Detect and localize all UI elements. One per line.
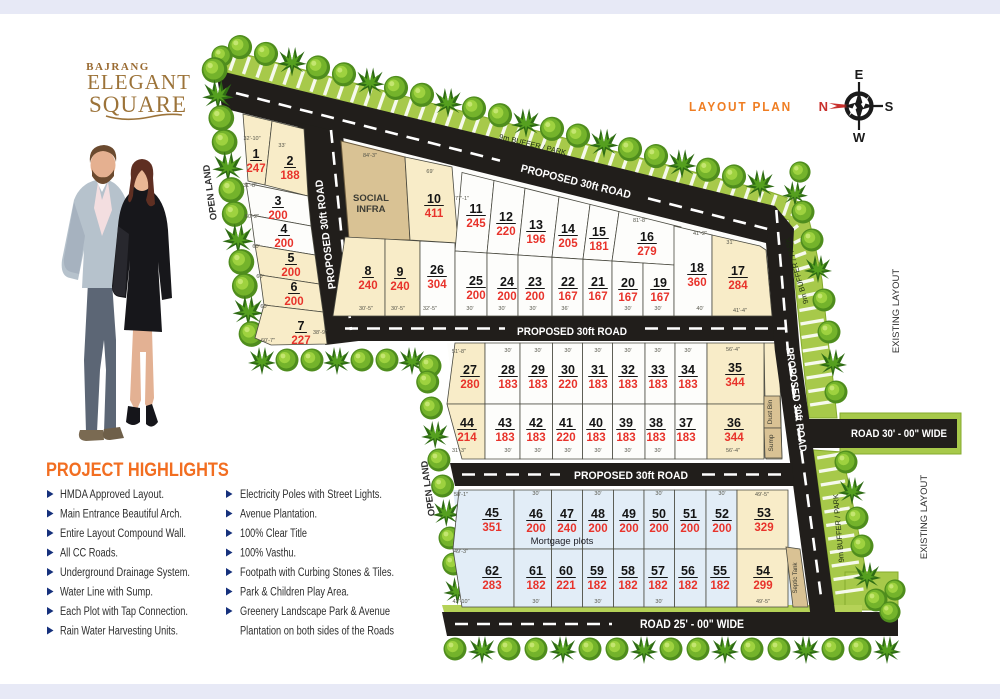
svg-text:53: 53 [757, 506, 771, 520]
svg-text:29: 29 [531, 363, 545, 377]
svg-text:183: 183 [588, 379, 607, 391]
svg-text:6: 6 [291, 280, 298, 294]
svg-text:1: 1 [253, 147, 260, 161]
svg-text:329: 329 [754, 522, 773, 534]
svg-text:30': 30' [504, 448, 511, 454]
svg-text:200: 200 [497, 291, 516, 303]
svg-text:N: N [819, 99, 828, 114]
svg-text:W: W [853, 130, 866, 145]
svg-text:167: 167 [618, 292, 637, 304]
svg-text:182: 182 [526, 580, 545, 592]
svg-text:205: 205 [558, 238, 578, 250]
svg-text:30': 30' [532, 491, 539, 497]
svg-text:167: 167 [650, 292, 669, 304]
svg-text:30': 30' [594, 491, 601, 497]
svg-text:PROPOSED 30ft ROAD: PROPOSED 30ft ROAD [517, 326, 627, 338]
svg-text:183: 183 [648, 379, 667, 391]
svg-text:200: 200 [712, 523, 731, 535]
svg-text:182: 182 [710, 580, 729, 592]
svg-text:15: 15 [592, 225, 606, 239]
svg-text:167: 167 [588, 291, 607, 303]
svg-text:30': 30' [718, 491, 725, 497]
svg-text:EXISTING LAYOUT: EXISTING LAYOUT [919, 475, 930, 559]
svg-text:2: 2 [287, 154, 294, 168]
svg-text:Underground Drainage System.: Underground Drainage System. [60, 567, 190, 579]
svg-text:69': 69' [426, 169, 433, 175]
svg-text:200: 200 [588, 523, 607, 535]
svg-text:10: 10 [427, 192, 441, 206]
svg-text:9: 9 [397, 265, 404, 279]
svg-text:30': 30' [654, 348, 661, 354]
svg-text:344: 344 [724, 432, 744, 444]
svg-text:51: 51 [683, 507, 697, 521]
svg-text:30': 30' [654, 306, 661, 312]
svg-text:31'-3": 31'-3" [452, 448, 466, 454]
svg-text:8: 8 [365, 264, 372, 278]
svg-text:59: 59 [590, 564, 604, 578]
svg-text:19: 19 [653, 276, 667, 290]
svg-text:183: 183 [618, 379, 637, 391]
svg-text:Main Entrance Beautiful Arch.: Main Entrance Beautiful Arch. [60, 509, 182, 521]
svg-text:33': 33' [278, 143, 285, 149]
svg-text:60'-7": 60'-7" [261, 338, 275, 344]
svg-text:Dust Bin: Dust Bin [767, 399, 774, 424]
svg-text:32'-10": 32'-10" [243, 136, 260, 142]
svg-text:49: 49 [622, 507, 636, 521]
svg-text:41: 41 [559, 416, 573, 430]
svg-text:62: 62 [485, 564, 499, 578]
svg-text:196: 196 [526, 234, 545, 246]
svg-text:13: 13 [529, 218, 543, 232]
svg-text:HMDA Approved Layout.: HMDA Approved Layout. [60, 489, 164, 501]
svg-text:LAYOUT PLAN: LAYOUT PLAN [689, 99, 792, 114]
svg-text:183: 183 [646, 432, 665, 444]
svg-text:240: 240 [358, 280, 377, 292]
svg-text:27: 27 [463, 363, 477, 377]
svg-text:30': 30' [594, 348, 601, 354]
svg-text:Each Plot with Tap Connection.: Each Plot with Tap Connection. [60, 606, 188, 618]
svg-text:All CC Roads.: All CC Roads. [60, 548, 118, 560]
svg-text:200: 200 [284, 296, 303, 308]
svg-text:22: 22 [561, 275, 575, 289]
svg-text:214: 214 [457, 432, 477, 444]
svg-text:183: 183 [498, 379, 517, 391]
svg-text:34: 34 [681, 363, 695, 377]
svg-text:31: 31 [591, 363, 605, 377]
svg-text:30': 30' [624, 448, 631, 454]
svg-text:411: 411 [425, 208, 444, 220]
svg-text:52: 52 [715, 507, 729, 521]
svg-text:Footpath with Curbing Stones &: Footpath with Curbing Stones & Tiles. [240, 567, 394, 579]
svg-text:30': 30' [534, 348, 541, 354]
svg-text:Water Line with Sump.: Water Line with Sump. [60, 587, 153, 599]
svg-text:183: 183 [495, 432, 514, 444]
svg-text:30': 30' [624, 348, 631, 354]
svg-text:30': 30' [498, 306, 505, 312]
svg-text:Avenue Plantation.: Avenue Plantation. [240, 509, 317, 521]
svg-text:182: 182 [648, 580, 667, 592]
svg-text:221: 221 [556, 580, 576, 592]
svg-text:32: 32 [621, 363, 635, 377]
svg-text:ROAD 30' - 00" WIDE: ROAD 30' - 00" WIDE [851, 428, 947, 440]
svg-text:245: 245 [466, 218, 486, 230]
svg-text:183: 183 [526, 432, 545, 444]
svg-text:30': 30' [466, 306, 473, 312]
svg-text:200: 200 [680, 523, 699, 535]
svg-text:182: 182 [678, 580, 697, 592]
svg-text:11: 11 [469, 202, 482, 216]
svg-text:30'-5": 30'-5" [391, 306, 405, 312]
svg-text:100% Vasthu.: 100% Vasthu. [240, 548, 296, 560]
svg-text:200: 200 [281, 267, 300, 279]
svg-text:60'-2": 60'-2" [245, 214, 259, 220]
svg-text:Rain Water Harvesting Units.: Rain Water Harvesting Units. [60, 626, 178, 638]
svg-text:36': 36' [561, 306, 568, 312]
svg-text:31'-8": 31'-8" [243, 183, 257, 189]
svg-text:42: 42 [529, 416, 543, 430]
svg-text:Mortgage plots: Mortgage plots [531, 536, 594, 547]
svg-text:183: 183 [616, 432, 635, 444]
svg-text:Park & Children Play Area.: Park & Children Play Area. [240, 587, 349, 599]
svg-text:279: 279 [637, 246, 656, 258]
svg-text:PROJECT HIGHLIGHTS: PROJECT HIGHLIGHTS [46, 459, 229, 481]
svg-text:61: 61 [529, 564, 543, 578]
svg-text:SQUARE: SQUARE [89, 92, 187, 117]
svg-text:30': 30' [655, 599, 662, 605]
svg-text:167: 167 [558, 291, 577, 303]
svg-text:28: 28 [501, 363, 515, 377]
svg-text:Plantation on both sides of th: Plantation on both sides of the Roads [240, 626, 394, 638]
svg-text:17: 17 [731, 264, 745, 278]
svg-text:183: 183 [528, 379, 547, 391]
svg-text:47: 47 [560, 507, 574, 521]
svg-text:36: 36 [727, 416, 741, 430]
svg-text:200: 200 [466, 290, 485, 302]
svg-text:3: 3 [275, 194, 282, 208]
svg-text:30': 30' [564, 348, 571, 354]
svg-text:344: 344 [725, 377, 745, 389]
svg-text:30': 30' [529, 306, 536, 312]
svg-text:200: 200 [619, 523, 638, 535]
svg-text:60': 60' [256, 274, 263, 280]
svg-text:40: 40 [589, 416, 603, 430]
svg-text:14: 14 [561, 222, 575, 236]
svg-text:200: 200 [649, 523, 668, 535]
svg-text:58: 58 [621, 564, 635, 578]
svg-text:50: 50 [652, 507, 666, 521]
svg-text:60: 60 [559, 564, 573, 578]
svg-text:220: 220 [496, 226, 515, 238]
svg-text:351: 351 [482, 522, 502, 534]
svg-text:60': 60' [260, 304, 267, 310]
svg-text:12: 12 [499, 210, 513, 224]
svg-text:182: 182 [618, 580, 637, 592]
svg-text:43: 43 [498, 416, 512, 430]
svg-text:183: 183 [676, 432, 695, 444]
svg-text:26: 26 [430, 263, 444, 277]
svg-text:60': 60' [252, 244, 259, 250]
svg-text:51'-8": 51'-8" [452, 349, 466, 355]
svg-text:24: 24 [500, 275, 514, 289]
svg-text:38'-9": 38'-9" [313, 330, 327, 336]
svg-text:31': 31' [726, 240, 733, 246]
svg-text:44: 44 [460, 416, 474, 430]
svg-text:54: 54 [756, 564, 770, 578]
svg-text:Sump: Sump [768, 434, 775, 451]
svg-text:247: 247 [246, 163, 265, 175]
svg-text:360: 360 [687, 277, 706, 289]
svg-text:Greenery Landscape Park & Aven: Greenery Landscape Park & Avenue [240, 606, 390, 618]
svg-text:35: 35 [728, 361, 742, 375]
svg-text:56'-4": 56'-4" [726, 448, 740, 454]
svg-text:181: 181 [589, 241, 609, 253]
svg-text:30': 30' [624, 306, 631, 312]
svg-text:4: 4 [281, 222, 288, 236]
svg-text:200: 200 [525, 291, 544, 303]
svg-text:25: 25 [469, 274, 483, 288]
svg-text:58'-1": 58'-1" [454, 492, 468, 498]
svg-text:ELEGANT: ELEGANT [87, 70, 191, 94]
svg-text:23: 23 [528, 275, 542, 289]
svg-text:84'-3": 84'-3" [363, 153, 377, 159]
svg-text:20: 20 [621, 276, 635, 290]
svg-text:183: 183 [678, 379, 697, 391]
svg-text:41'-2": 41'-2" [693, 231, 707, 237]
svg-text:16: 16 [640, 230, 654, 244]
svg-text:49'-3": 49'-3" [454, 549, 468, 555]
svg-text:18: 18 [690, 261, 704, 275]
svg-text:41'-4": 41'-4" [733, 308, 747, 314]
svg-text:32'-5": 32'-5" [423, 306, 437, 312]
svg-text:220: 220 [558, 379, 577, 391]
svg-text:37: 37 [679, 416, 693, 430]
svg-text:200: 200 [526, 523, 545, 535]
svg-text:220: 220 [556, 432, 575, 444]
svg-text:48: 48 [591, 507, 605, 521]
svg-text:7: 7 [298, 319, 305, 333]
svg-text:200: 200 [274, 238, 293, 250]
svg-text:77'-1": 77'-1" [455, 196, 469, 202]
svg-text:21: 21 [591, 275, 605, 289]
svg-text:E: E [855, 67, 864, 82]
svg-text:39: 39 [619, 416, 633, 430]
svg-text:57: 57 [651, 564, 665, 578]
svg-text:30': 30' [655, 491, 662, 497]
svg-text:49'-5": 49'-5" [756, 599, 770, 605]
svg-text:240: 240 [390, 281, 409, 293]
svg-text:46: 46 [529, 507, 543, 521]
svg-text:30: 30 [561, 363, 575, 377]
svg-text:56: 56 [681, 564, 695, 578]
svg-text:30': 30' [594, 599, 601, 605]
svg-text:283: 283 [482, 580, 501, 592]
svg-text:30': 30' [532, 599, 539, 605]
svg-text:INFRA: INFRA [356, 204, 385, 215]
svg-text:EXISTING LAYOUT: EXISTING LAYOUT [891, 269, 902, 353]
svg-text:30': 30' [654, 448, 661, 454]
svg-text:280: 280 [460, 379, 479, 391]
svg-text:30': 30' [684, 348, 691, 354]
svg-text:5: 5 [288, 251, 295, 265]
svg-text:38: 38 [649, 416, 663, 430]
svg-text:42'-10": 42'-10" [452, 599, 469, 605]
svg-text:Electricity Poles with Street: Electricity Poles with Street Lights. [240, 489, 382, 501]
svg-text:55: 55 [713, 564, 727, 578]
svg-text:81'-8": 81'-8" [633, 218, 647, 224]
svg-text:ROAD 25' - 00" WIDE: ROAD 25' - 00" WIDE [640, 619, 744, 631]
svg-text:56'-4": 56'-4" [726, 347, 740, 353]
svg-text:49'-5": 49'-5" [755, 492, 769, 498]
svg-text:240: 240 [557, 523, 576, 535]
svg-text:100% Clear Title: 100% Clear Title [240, 528, 307, 540]
svg-text:299: 299 [753, 580, 772, 592]
svg-text:304: 304 [427, 279, 447, 291]
svg-text:30'-5": 30'-5" [359, 306, 373, 312]
svg-text:S: S [885, 99, 894, 114]
svg-text:284: 284 [728, 280, 748, 292]
svg-text:182: 182 [587, 580, 606, 592]
svg-text:Septic Tank: Septic Tank [793, 562, 799, 594]
svg-text:45: 45 [485, 506, 499, 520]
svg-text:SOCIAL: SOCIAL [353, 193, 389, 204]
svg-text:183: 183 [586, 432, 605, 444]
svg-text:PROPOSED 30ft ROAD: PROPOSED 30ft ROAD [574, 470, 688, 482]
svg-text:30': 30' [534, 448, 541, 454]
svg-text:33: 33 [651, 363, 665, 377]
svg-text:30': 30' [594, 448, 601, 454]
svg-text:30': 30' [564, 448, 571, 454]
svg-text:200: 200 [268, 210, 287, 222]
svg-text:227: 227 [291, 335, 310, 347]
svg-text:Entire Layout Compound Wall.: Entire Layout Compound Wall. [60, 528, 186, 540]
svg-text:30': 30' [504, 348, 511, 354]
svg-text:40': 40' [696, 306, 703, 312]
svg-text:188: 188 [280, 170, 300, 182]
